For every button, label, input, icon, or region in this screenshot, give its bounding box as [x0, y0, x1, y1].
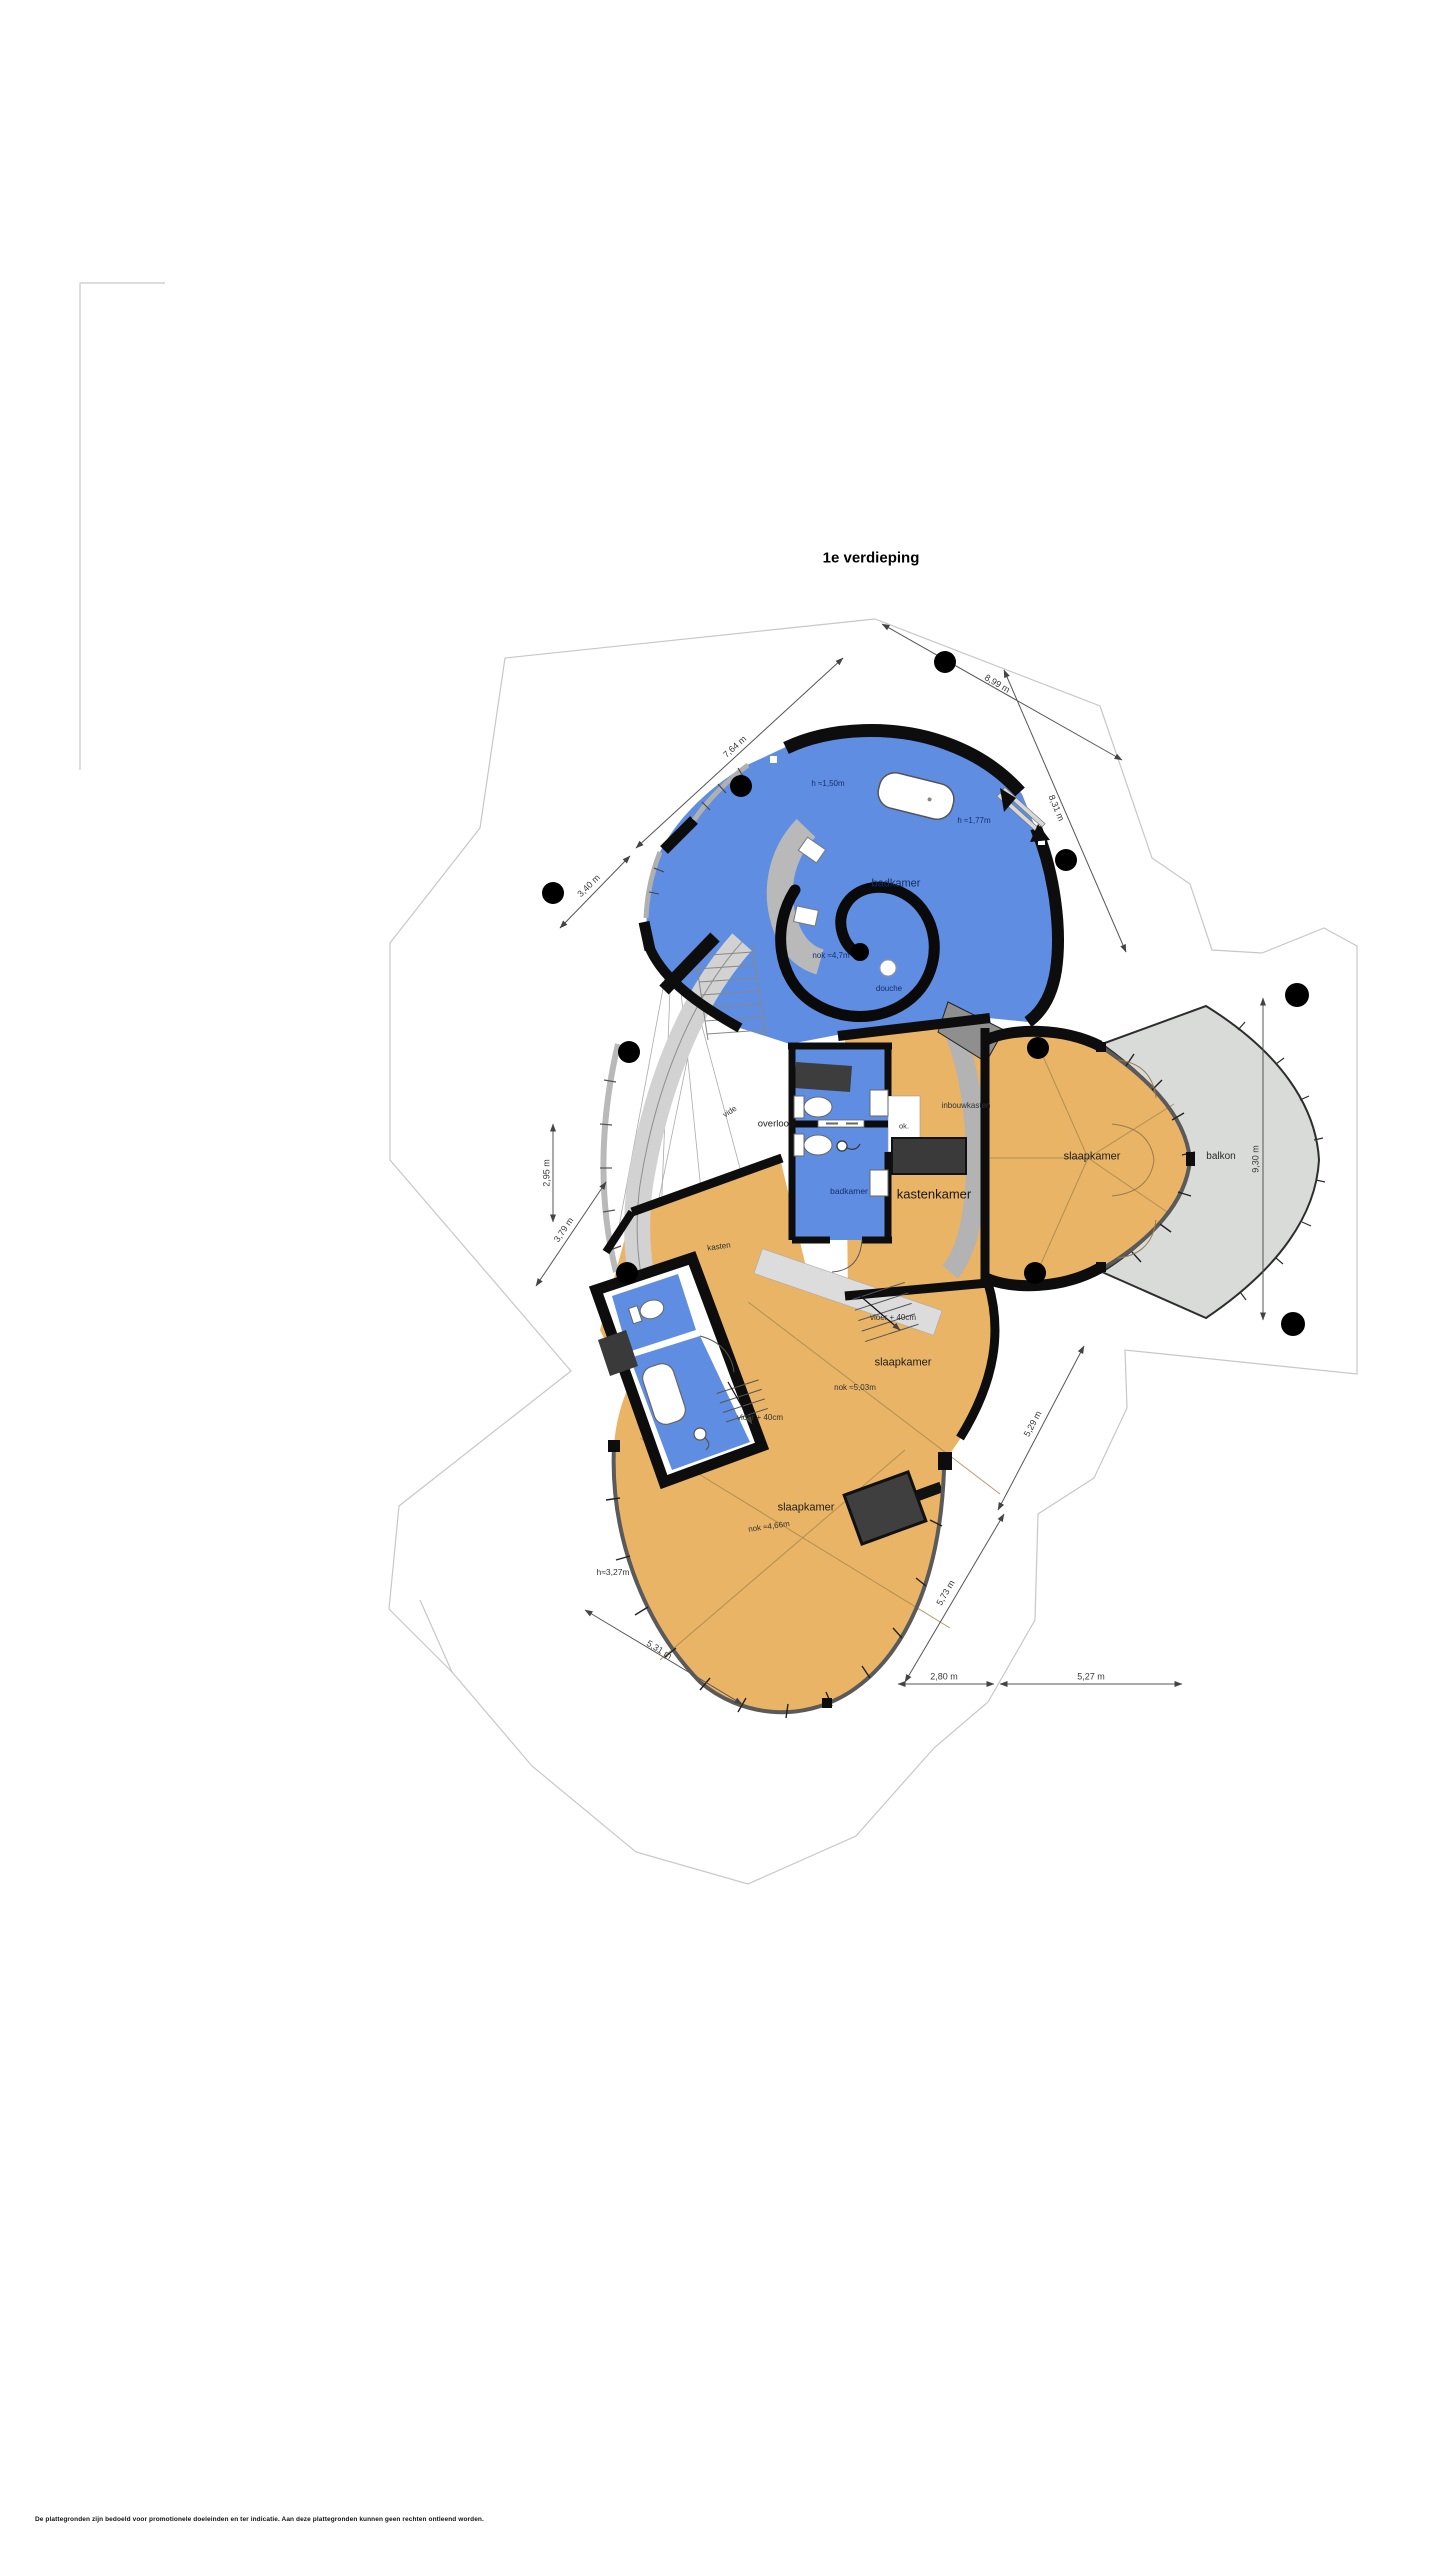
toilet [794, 1096, 832, 1118]
dim-930: 9,30 m [1252, 1145, 1261, 1173]
closet-wedge-block [794, 1062, 852, 1092]
shower-drain [880, 960, 896, 976]
floor-plan-page: 1e verdieping badkamer douche h ≈1,50m h… [0, 0, 1440, 2560]
dim-280: 2,80 m [930, 1673, 958, 1682]
column-dot [851, 943, 869, 961]
dim-295: 2,95 m [543, 1159, 552, 1187]
room-label-badkamer-small: badkamer [830, 1187, 868, 1196]
label-ok: ok. [899, 1122, 909, 1130]
toilet [794, 1134, 832, 1156]
disclaimer-text: De plattegronden zijn bedoeld voor promo… [35, 2516, 484, 2523]
sliding-door [818, 1120, 864, 1127]
label-vloer40-lower: vloer + 40cm [737, 1414, 783, 1422]
page-title: 1e verdieping [823, 551, 920, 566]
room-label-slaapkamer-mid: slaapkamer [875, 1358, 932, 1369]
label-h177: h ≈1,77m [957, 817, 990, 825]
label-nok47: nok ≈4,7m [812, 952, 849, 960]
dim-527: 5,27 m [1077, 1673, 1105, 1682]
label-h150: h ≈1,50m [811, 780, 844, 788]
label-vloer40-upper: vloer + 40cm [870, 1314, 916, 1322]
room-label-badkamer: badkamer [872, 879, 921, 890]
room-label-overloop: overloop [758, 1119, 794, 1129]
floor-plan-drawing [0, 0, 1440, 2560]
label-douche: douche [876, 985, 902, 993]
closet-block [892, 1138, 966, 1174]
label-nok503: nok ≈5,03m [834, 1384, 876, 1392]
label-h327: h≈3,27m [596, 1568, 629, 1577]
room-label-slaapkamer-bottom: slaapkamer [778, 1503, 835, 1514]
room-label-balkon: balkon [1206, 1152, 1235, 1162]
room-label-slaapkamer-right: slaapkamer [1064, 1152, 1121, 1163]
room-label-kastenkamer: kastenkamer [897, 1188, 971, 1201]
label-inbouwkasten: inbouwkasten [942, 1102, 991, 1110]
